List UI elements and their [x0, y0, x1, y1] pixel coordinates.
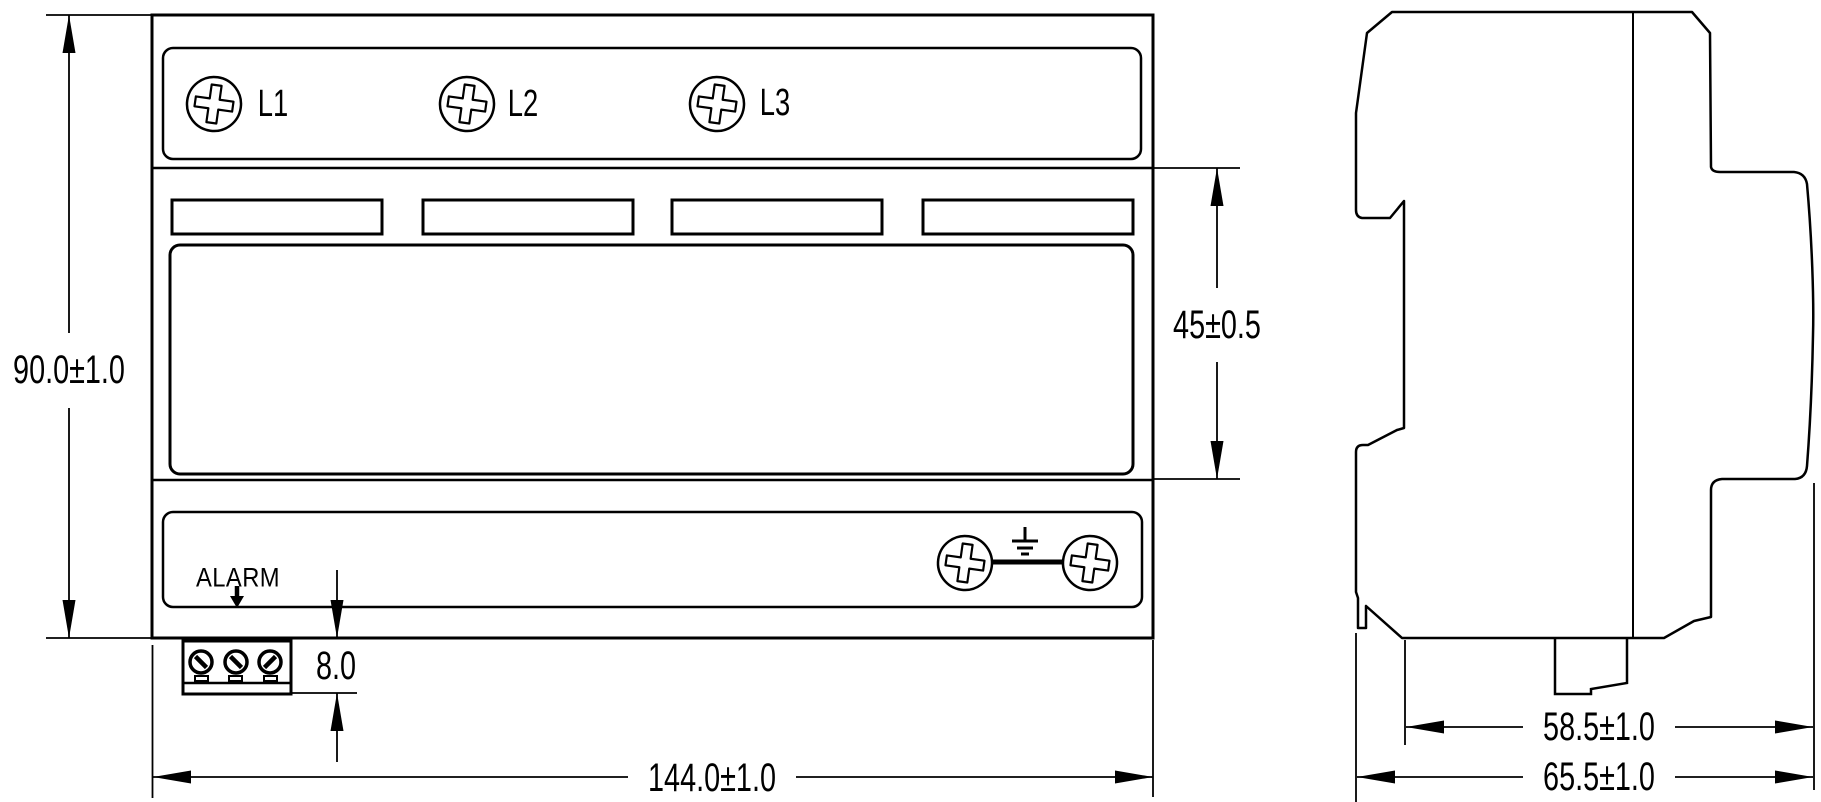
din-rail-slider-tab — [1555, 639, 1627, 694]
alarm-terminal-block — [183, 639, 291, 694]
wire-clamp-window — [264, 676, 277, 681]
dimension-overall-height — [46, 15, 152, 638]
dimension-label-overall-height: 90.0±1.0 — [69, 370, 224, 410]
window-slot — [923, 200, 1133, 234]
phase-label-l3: L3 — [775, 103, 817, 141]
display-window — [170, 245, 1133, 474]
phase-label-l1: L1 — [273, 104, 315, 142]
wire-clamp-window — [229, 676, 242, 681]
wire-clamp-window — [195, 676, 208, 681]
dimension-label-overall-width: 144.0±1.0 — [712, 778, 890, 802]
phillips-screw-icon — [935, 533, 996, 594]
window-slot — [423, 200, 633, 234]
phillips-screw-icon — [437, 74, 498, 135]
phillips-screw-icon — [184, 74, 245, 135]
dimensional-drawing: 90.0±1.0 45±0.5 8.0 144.0±1.0 58.5±1.0 6… — [0, 0, 1821, 802]
slotted-screw-icon — [225, 651, 247, 673]
window-slot — [672, 200, 882, 234]
alarm-label: ALARM — [238, 578, 334, 605]
earth-ground-icon — [1012, 527, 1038, 554]
dimension-label-overall-depth: 65.5±1.0 — [1599, 777, 1754, 802]
side-profile-outline — [1356, 12, 1813, 638]
window-slot — [172, 200, 382, 234]
dimension-label-terminal-height: 8.0 — [336, 666, 392, 706]
dimension-label-center-height: 45±0.5 — [1217, 325, 1339, 365]
side-view — [1356, 12, 1813, 694]
slotted-screw-icon — [190, 651, 212, 673]
phillips-screw-icon — [687, 74, 748, 135]
slotted-screw-icon — [259, 651, 281, 673]
phase-label-l2: L2 — [523, 104, 565, 142]
phillips-screw-icon — [1060, 533, 1121, 594]
